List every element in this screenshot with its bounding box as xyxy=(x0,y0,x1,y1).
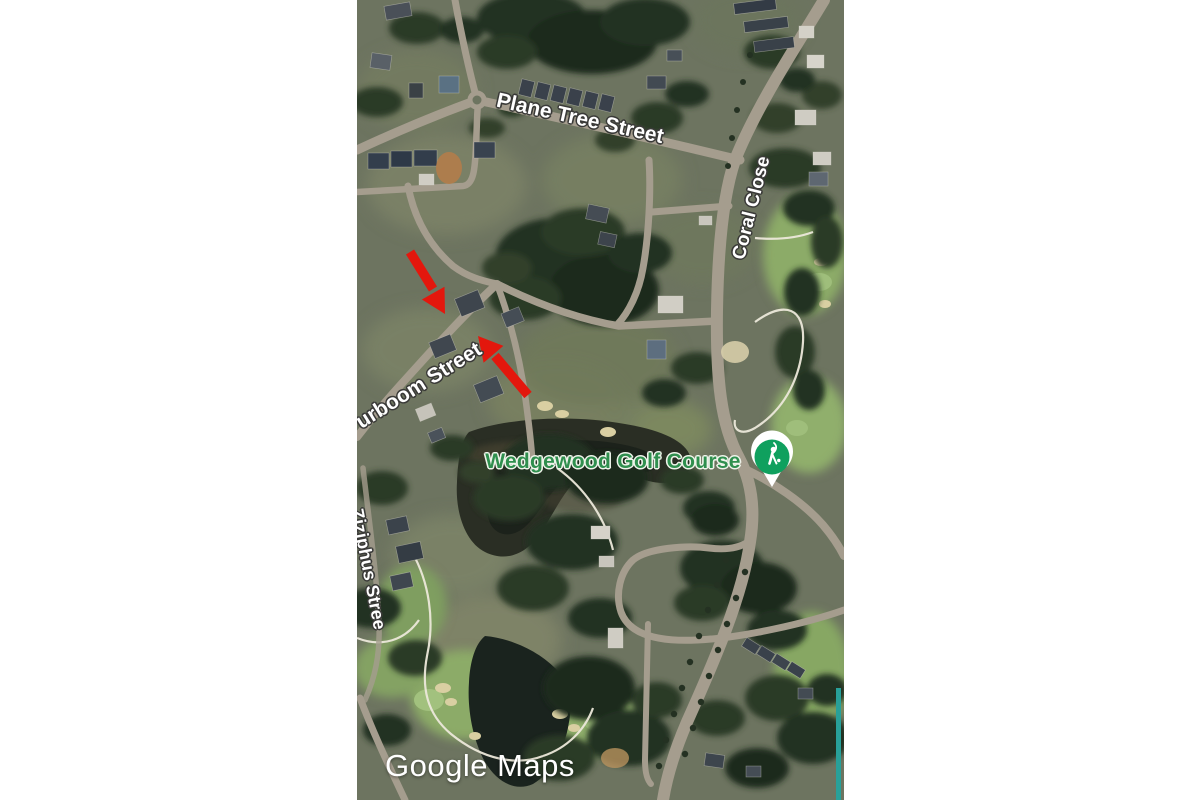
left-margin xyxy=(0,0,357,800)
teal-edge-strip xyxy=(836,688,841,800)
poi-label-golf-course: Wedgewood Golf Course xyxy=(485,450,741,474)
map-canvas[interactable]: Plane Tree Street Coral Close urboom Str… xyxy=(357,0,844,800)
roundabout xyxy=(470,93,484,107)
right-margin xyxy=(844,0,1200,800)
screenshot-stage: Plane Tree Street Coral Close urboom Str… xyxy=(0,0,1200,800)
google-maps-watermark: Google Maps xyxy=(385,748,575,784)
